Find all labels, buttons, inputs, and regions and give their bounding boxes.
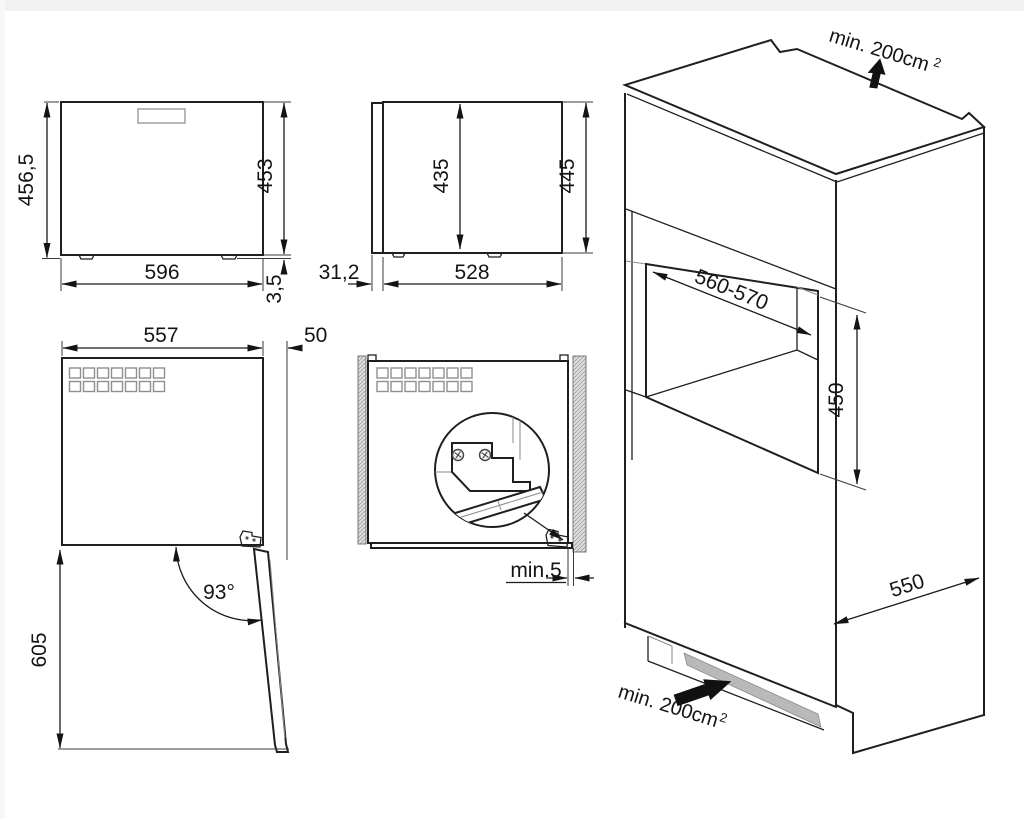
- dim-label-453: 453: [254, 158, 277, 193]
- dim-label-596: 596: [144, 261, 179, 284]
- vent-grid-cell: [84, 368, 95, 378]
- open-door: [254, 549, 288, 752]
- dim-label-31-2: 31,2: [319, 261, 360, 284]
- screw-dot: [252, 538, 255, 541]
- vent-grid-cell: [154, 368, 165, 378]
- niche-back-bottom-edge: [797, 350, 818, 360]
- installed-view: min.5: [358, 355, 594, 586]
- vent-grid-cell: [405, 368, 416, 378]
- vent-grid-cell: [98, 368, 109, 378]
- display-window: [138, 109, 185, 123]
- side-view: 435 445 31,2 528: [319, 102, 593, 291]
- front-view: 456,5 453 3,5 596: [15, 102, 291, 304]
- joint-line: [626, 261, 646, 264]
- detail-screw: [452, 449, 463, 460]
- dim-label-528: 528: [454, 261, 489, 284]
- vent-grid-cell: [112, 382, 123, 392]
- dim-label-93: 93°: [203, 581, 235, 604]
- cabinet-view: 560-570 450 550 min. 200cm2 min. 200: [616, 23, 984, 753]
- vent-grid-cell: [112, 368, 123, 378]
- joint-line: [626, 390, 646, 397]
- vent-grid-cell: [391, 368, 402, 378]
- vent-grid-cell: [377, 382, 388, 392]
- cabinet-wall-right: [573, 356, 586, 552]
- base-right-step: [836, 705, 984, 753]
- dim-label-557: 557: [143, 324, 178, 347]
- ext-line: [820, 297, 866, 313]
- closed-door-edge: [371, 543, 572, 548]
- dim-label-560-570: 560-570: [691, 265, 771, 315]
- vent-grid-cell: [461, 382, 472, 392]
- screw-dot: [245, 536, 248, 539]
- vent-grid-cell: [70, 368, 81, 378]
- dim-label-550: 550: [887, 570, 927, 603]
- front-body: [61, 102, 263, 255]
- vent-grid-cell: [419, 368, 430, 378]
- vent-grid-cell: [461, 368, 472, 378]
- vent-grid-cell: [377, 368, 388, 378]
- dim-label-450: 450: [825, 382, 848, 417]
- dim-label-445: 445: [556, 158, 579, 193]
- ext-line: [820, 474, 866, 490]
- diagram-canvas: 456,5 453 3,5 596 435: [0, 0, 1024, 819]
- vent-grid-cell: [126, 382, 137, 392]
- side-body: [383, 102, 562, 253]
- niche-floor-left-edge: [646, 350, 797, 397]
- side-door: [372, 103, 383, 253]
- detail-screw: [479, 449, 490, 460]
- dim-label-456-5: 456,5: [15, 154, 38, 207]
- vent-grid-cell: [433, 382, 444, 392]
- dim-label-50: 50: [304, 324, 327, 347]
- vent-grid-cell: [140, 368, 151, 378]
- vent-grid-cell: [126, 368, 137, 378]
- vent-grid-cell: [70, 382, 81, 392]
- dim-label-605: 605: [28, 632, 51, 667]
- dim-label-435: 435: [430, 158, 453, 193]
- screw-dot: [550, 535, 553, 538]
- vent-grid-cell: [84, 382, 95, 392]
- vent-grid-cell: [447, 368, 458, 378]
- vent-grid-cell: [405, 382, 416, 392]
- dim-label-3-5: 3,5: [263, 274, 286, 303]
- installation-diagram: 456,5 453 3,5 596 435: [0, 0, 1024, 819]
- vent-grid-cell: [433, 368, 444, 378]
- vent-grid-cell: [391, 382, 402, 392]
- vent-grid-cell: [98, 382, 109, 392]
- vent-grid-cell: [154, 382, 165, 392]
- top-view-open: 93° 605 557 50: [28, 324, 327, 752]
- vent-grid-cell: [419, 382, 430, 392]
- dim-label-min5: min.5: [510, 559, 561, 582]
- vent-grid-cell: [140, 382, 151, 392]
- cabinet-wall-left: [358, 356, 366, 544]
- vent-grid-cell: [447, 382, 458, 392]
